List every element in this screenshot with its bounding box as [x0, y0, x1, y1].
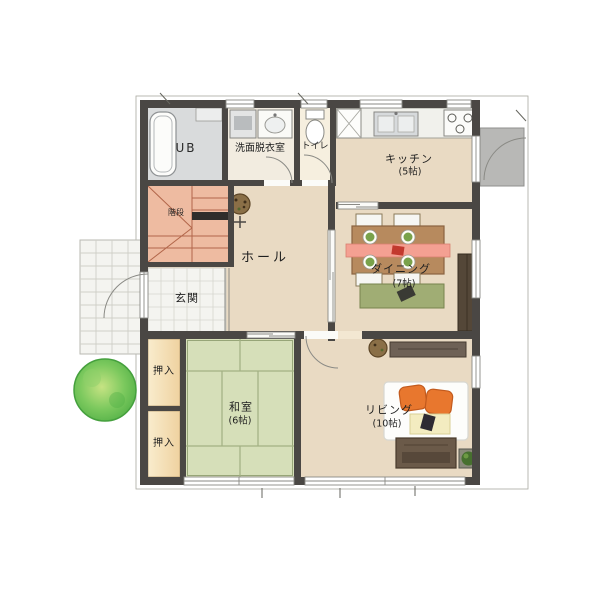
door-gap: [304, 331, 338, 339]
backdoor-opening: [472, 136, 480, 182]
entrance-porch-tiles: [80, 240, 142, 354]
label-stairs: 階段: [168, 209, 184, 217]
label-living: リビング: [365, 405, 413, 416]
room-kitchen: [336, 108, 476, 138]
stair-handrail: [192, 212, 234, 220]
backdoor-landing: [480, 128, 524, 186]
label-kitchen-size: (5帖): [399, 167, 422, 177]
tree: [74, 359, 136, 421]
label-dining: ダイニング: [371, 264, 431, 275]
bath-counter: [196, 108, 222, 121]
label-ub: UB: [175, 142, 196, 154]
toilet-bowl: [306, 120, 324, 144]
window: [447, 100, 471, 108]
label-hall: ホール: [241, 252, 289, 265]
window: [184, 477, 294, 485]
window: [472, 356, 480, 388]
floorplan-canvas: UB 洗面脱衣室 トイレ キッチン (5帖) ホール 階段 玄関 ダイニング (…: [0, 0, 600, 600]
window: [305, 477, 465, 485]
dining-chair: [394, 214, 420, 227]
label-living-size: (10帖): [372, 419, 401, 429]
window: [360, 100, 402, 108]
label-kitchen: キッチン: [385, 154, 433, 165]
stove: [444, 110, 476, 136]
label-washitsu-size: (6帖): [229, 416, 252, 426]
opening: [336, 331, 362, 339]
table-centerpiece: [391, 245, 404, 256]
sliding-door: [328, 230, 335, 322]
label-genkan: 玄関: [175, 293, 199, 304]
floor-cushion: [425, 389, 454, 416]
label-washitsu: 和室: [229, 402, 253, 413]
toilet-tank: [306, 110, 324, 119]
living-wreath: [369, 339, 387, 357]
label-washroom: 洗面脱衣室: [235, 144, 285, 154]
door-gap: [302, 180, 328, 186]
sliding-door: [247, 332, 295, 338]
label-dining-size: (7帖): [393, 279, 416, 289]
label-toilet: トイレ: [301, 143, 328, 152]
window: [472, 240, 480, 298]
label-oshiire-lower: 押入: [153, 439, 175, 449]
sliding-door: [338, 202, 378, 209]
dining-chair: [356, 214, 382, 227]
window: [226, 100, 254, 108]
floorplan-drawing: [0, 0, 600, 600]
sideboard: [390, 342, 466, 357]
entrance-opening: [140, 272, 148, 318]
door-gap: [264, 180, 290, 186]
label-oshiire-upper: 押入: [153, 367, 175, 377]
